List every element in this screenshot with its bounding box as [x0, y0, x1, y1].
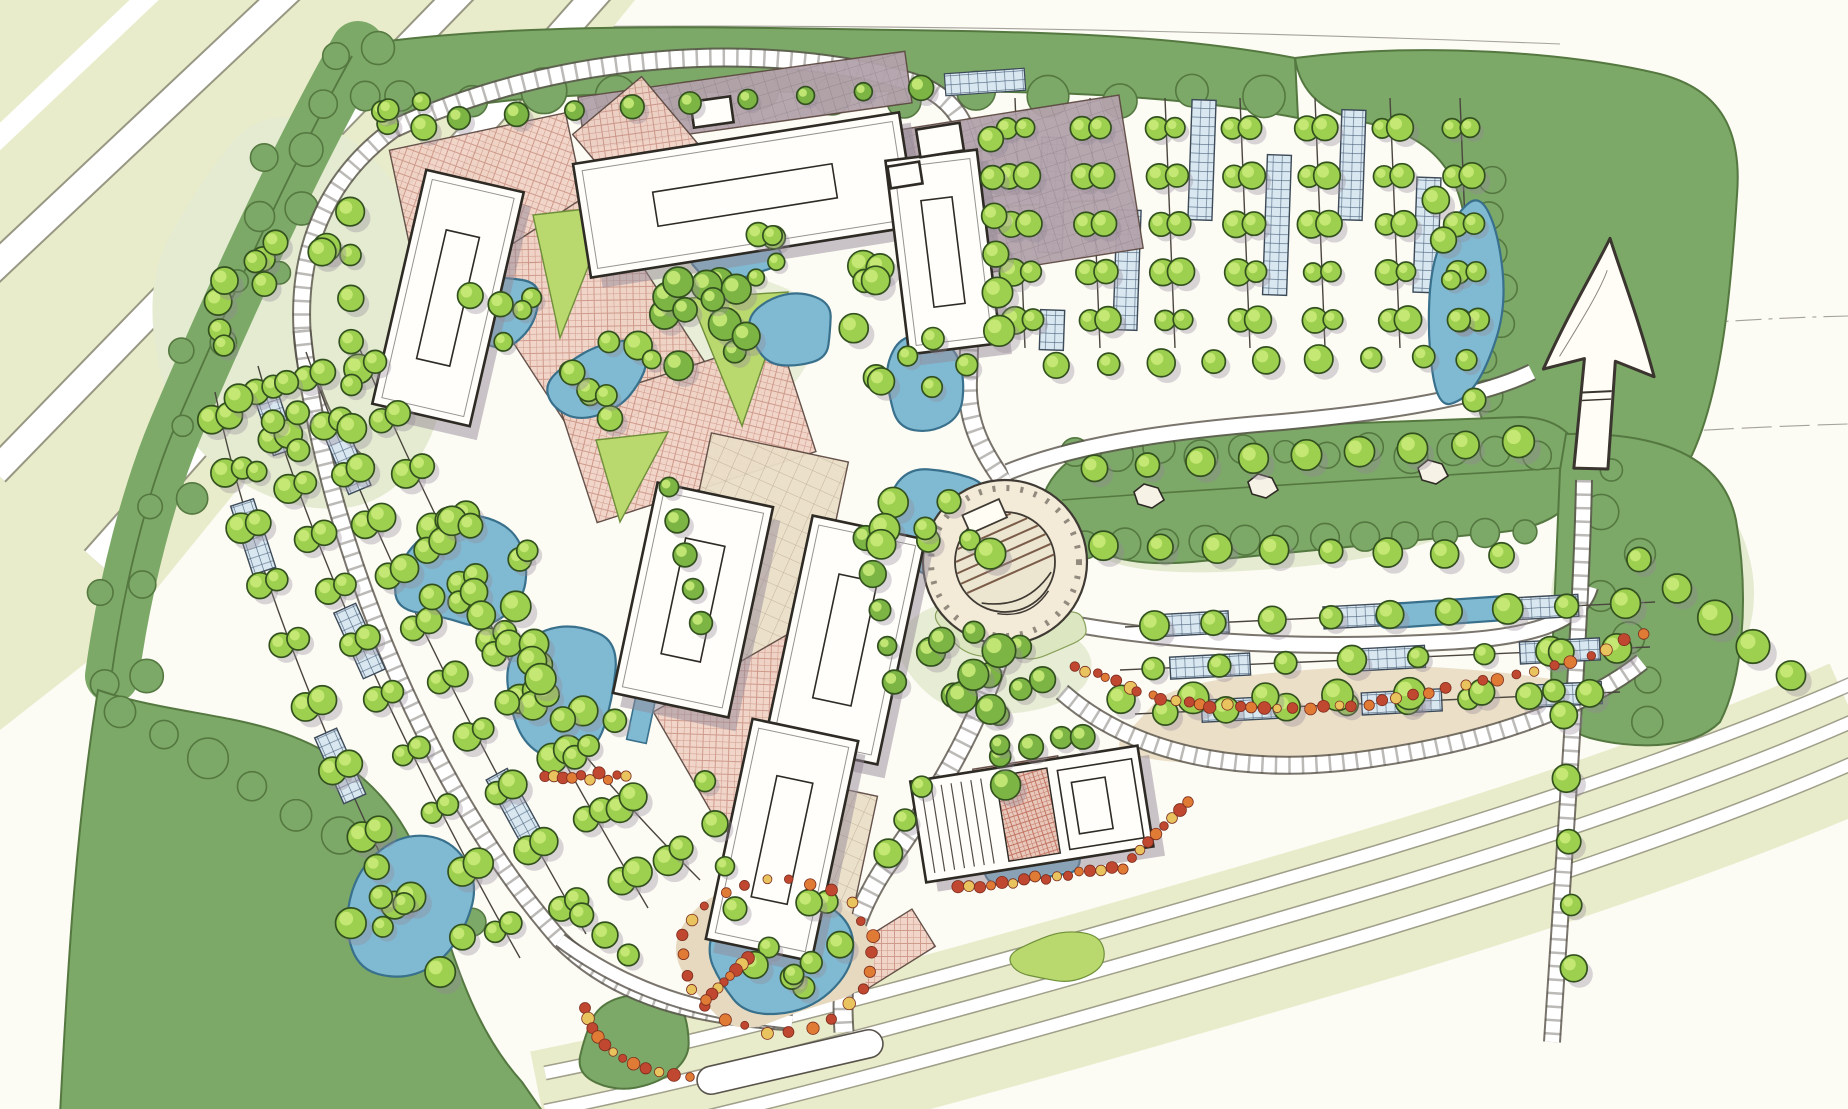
flower [1096, 865, 1107, 876]
flower [1052, 872, 1061, 881]
flower [1440, 682, 1451, 693]
site-plan-canvas [0, 0, 1848, 1109]
flower [627, 1057, 640, 1070]
forest-scallop [1243, 75, 1285, 117]
flower [866, 946, 878, 958]
flower [1638, 629, 1649, 640]
flower [1600, 644, 1612, 656]
flower [1287, 703, 1298, 714]
flower [996, 876, 1008, 888]
flower [1564, 656, 1577, 669]
flower [741, 1021, 749, 1029]
flower [739, 880, 749, 890]
forest-scallop [289, 133, 323, 167]
flower [619, 1054, 627, 1062]
flower [1491, 674, 1503, 686]
flower [1018, 874, 1029, 885]
flower [567, 773, 578, 784]
flower [858, 984, 868, 994]
flower [974, 882, 985, 893]
flower [1408, 689, 1419, 700]
forest-scallop [1513, 520, 1537, 544]
forest-scallop [237, 772, 266, 801]
forest-scallop [362, 32, 395, 65]
forest-scallop [188, 738, 229, 779]
flower [1423, 688, 1434, 699]
flower [763, 875, 772, 884]
flower [621, 771, 631, 781]
flower [640, 1063, 651, 1074]
flower [1030, 871, 1041, 882]
forest-scallop [87, 580, 113, 606]
flower [609, 1048, 618, 1057]
flower [1529, 667, 1539, 677]
forest-scallop [130, 659, 163, 692]
flower [1118, 864, 1128, 874]
flower [1204, 701, 1216, 713]
flower [1008, 879, 1018, 889]
flower [867, 930, 880, 943]
flower [1461, 680, 1471, 690]
flower [864, 966, 875, 977]
flower [826, 884, 838, 896]
flower [1075, 867, 1084, 876]
flower [1478, 675, 1488, 685]
flower [1160, 822, 1169, 831]
flower [603, 775, 612, 784]
flower [1084, 865, 1095, 876]
flower [856, 917, 865, 926]
forest-scallop [172, 415, 193, 436]
forest-scallop [150, 720, 178, 748]
forest-scallop [1471, 519, 1500, 548]
flower [576, 771, 586, 781]
flower [1377, 695, 1388, 706]
pond [749, 293, 830, 365]
flower [700, 902, 708, 910]
flower [1305, 703, 1317, 715]
flower [1155, 693, 1167, 705]
forest-scallop [138, 494, 162, 518]
flower [1550, 661, 1559, 670]
flower [1246, 702, 1257, 713]
forest-scallop [250, 144, 277, 171]
forest-scallop [129, 571, 156, 598]
flower [761, 1027, 773, 1039]
forest-scallop [309, 90, 337, 118]
flower [1618, 634, 1630, 646]
flower [843, 997, 856, 1010]
flower [593, 767, 605, 779]
flower [721, 888, 731, 898]
forest-scallop [1632, 706, 1663, 737]
flower [1080, 666, 1091, 677]
flower [654, 1067, 663, 1076]
forest-scallop [169, 338, 194, 363]
service-structure [916, 123, 964, 158]
flower [1183, 797, 1194, 808]
flower [1222, 699, 1233, 710]
flower [804, 879, 816, 891]
flower [826, 1014, 836, 1024]
flower [686, 1073, 695, 1082]
flower [686, 914, 698, 926]
flower [1132, 687, 1141, 696]
flower [986, 881, 995, 890]
flower [719, 1014, 731, 1026]
flower [1346, 701, 1357, 712]
forest-scallop [280, 800, 311, 831]
flower [1258, 702, 1271, 715]
flower [682, 970, 693, 981]
flower [1512, 670, 1521, 679]
flower [1364, 700, 1374, 710]
flower [1587, 652, 1596, 661]
forest-scallop [323, 43, 350, 70]
flower [1184, 697, 1194, 707]
flower [701, 995, 712, 1006]
flower [1111, 675, 1122, 686]
forest-scallop [104, 696, 135, 727]
flower [1127, 853, 1136, 862]
flower [1150, 828, 1162, 840]
flower [1106, 862, 1118, 874]
flower [613, 771, 621, 779]
flower [784, 875, 793, 884]
forest-scallop [245, 202, 275, 232]
flower [687, 984, 697, 994]
site-plan [0, 0, 1848, 1109]
flower [807, 1022, 819, 1034]
parking-stall-strip [1338, 110, 1366, 221]
forest-scallop [177, 483, 208, 514]
flower [952, 881, 964, 893]
flower [1390, 693, 1401, 704]
flower [667, 1068, 680, 1081]
flower [1335, 701, 1344, 710]
flower [1135, 845, 1145, 855]
parking-stall-strip [1188, 100, 1216, 221]
flower [1063, 871, 1072, 880]
parking-stall-strip [944, 68, 1025, 96]
flower [1273, 704, 1281, 712]
flower [847, 897, 858, 908]
flower [964, 881, 975, 892]
flower [783, 1027, 794, 1038]
flower [1101, 673, 1109, 681]
flower [1070, 662, 1080, 672]
flower [1171, 696, 1181, 706]
flower [678, 949, 689, 960]
flower [1236, 701, 1246, 711]
flower [677, 929, 688, 940]
service-structure [887, 162, 922, 189]
flower [599, 1039, 611, 1051]
flower [1041, 875, 1051, 885]
flower [1318, 700, 1330, 712]
